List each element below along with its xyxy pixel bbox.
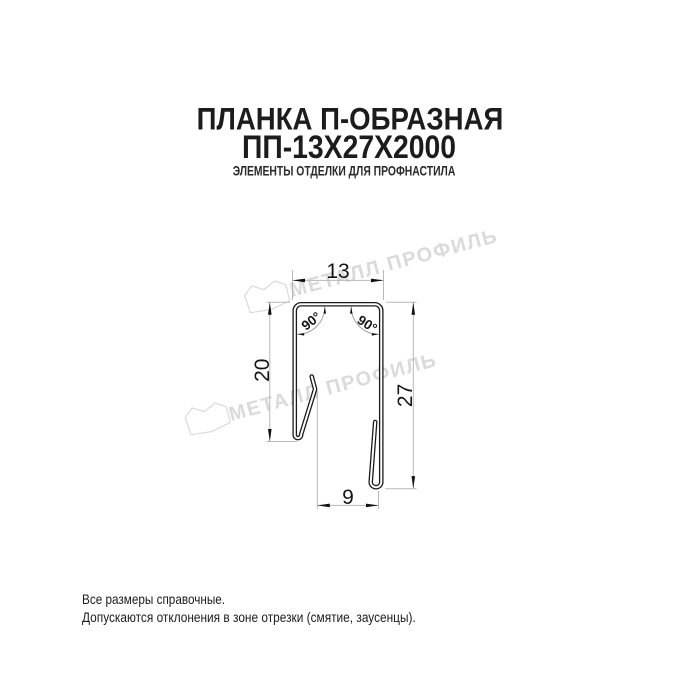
svg-text:Допускаются отклонения в зоне: Допускаются отклонения в зоне отрезки (с… [82, 609, 416, 625]
svg-text:13: 13 [326, 260, 349, 283]
svg-text:ПП-13Х27Х2000: ПП-13Х27Х2000 [242, 130, 456, 165]
svg-text:Все размеры справочные.: Все размеры справочные. [82, 592, 225, 607]
svg-text:9: 9 [342, 486, 354, 509]
svg-text:27: 27 [394, 384, 417, 407]
svg-text:20: 20 [251, 359, 274, 382]
svg-text:ЭЛЕМЕНТЫ ОТДЕЛКИ ДЛЯ ПРОФНАСТИ: ЭЛЕМЕНТЫ ОТДЕЛКИ ДЛЯ ПРОФНАСТИЛА [233, 163, 456, 179]
